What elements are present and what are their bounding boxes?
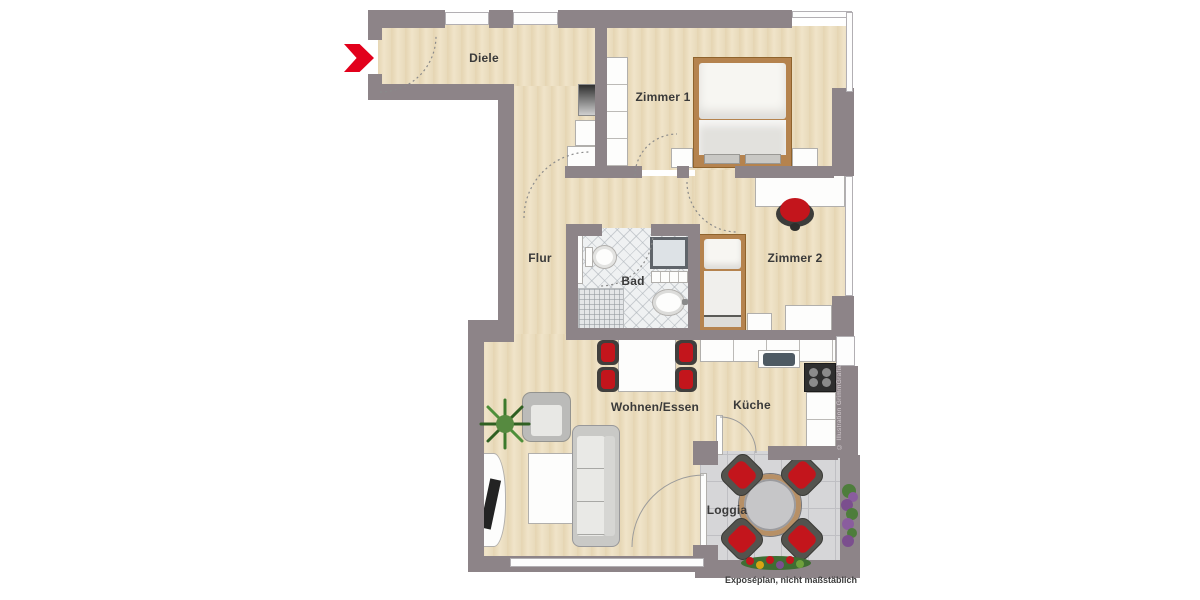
- bed-footpad: [745, 154, 781, 164]
- sofa-seats: [577, 436, 605, 536]
- shower-floor: [578, 288, 624, 331]
- window: [845, 176, 853, 296]
- burner: [822, 378, 831, 387]
- room-label-zimmer1: Zimmer 1: [636, 90, 691, 104]
- nightstand-left: [671, 148, 693, 168]
- wall: [832, 88, 854, 176]
- wall: [566, 328, 700, 340]
- sink-unit: [758, 350, 800, 368]
- wall: [700, 330, 836, 340]
- dining-chair: [675, 367, 697, 392]
- window: [510, 558, 704, 567]
- burner: [822, 368, 831, 377]
- window: [792, 11, 852, 18]
- chair-cushion: [679, 343, 693, 362]
- illustrator-credit: © Illustration GrimmGrafik: [836, 362, 843, 450]
- nightstand-right: [792, 148, 818, 168]
- stove: [804, 363, 836, 392]
- wall: [768, 446, 838, 460]
- entrance-arrow-icon: [344, 44, 374, 72]
- room-label-bad: Bad: [621, 274, 644, 288]
- wall: [688, 224, 700, 334]
- toilet: [592, 245, 617, 269]
- dresser: [785, 305, 832, 332]
- armchair: [522, 392, 571, 442]
- wall: [651, 224, 700, 236]
- chair-cushion: [601, 370, 615, 389]
- wall: [489, 10, 513, 28]
- wall: [368, 74, 382, 86]
- sink-basin: [763, 353, 795, 366]
- bed-pillow: [704, 239, 741, 269]
- washbasin: [652, 289, 685, 316]
- wall: [368, 84, 514, 100]
- dining-chair: [675, 340, 697, 365]
- chair-cushion: [726, 459, 759, 492]
- chair-cushion: [786, 459, 819, 492]
- dining-chair: [597, 340, 619, 365]
- burner: [809, 368, 818, 377]
- sofa: [572, 425, 620, 547]
- sofa-backrest: [604, 436, 615, 536]
- burner: [809, 378, 818, 387]
- wall: [566, 228, 578, 332]
- wall: [498, 94, 514, 324]
- wall: [677, 166, 689, 178]
- bed-duvet: [699, 120, 786, 155]
- room-label-flur: Flur: [528, 251, 551, 265]
- wall: [693, 441, 718, 465]
- vanity-shelf: [651, 271, 688, 283]
- wall: [735, 166, 834, 178]
- room-label-wohnen: Wohnen/Essen: [611, 400, 699, 414]
- wall: [468, 336, 484, 566]
- chair-cushion: [679, 370, 693, 389]
- single-bed: [699, 234, 746, 332]
- room-label-zimmer2: Zimmer 2: [768, 251, 823, 265]
- floor-corridor: [595, 176, 700, 228]
- floorplan-canvas: Diele Zimmer 1 Zimmer 2 Flur Bad Küche W…: [0, 0, 1200, 600]
- chair-cushion: [726, 523, 759, 556]
- room-label-diele: Diele: [469, 51, 499, 65]
- room-label-kueche: Küche: [733, 398, 771, 412]
- room-label-loggia: Loggia: [707, 503, 748, 517]
- chair-cushion: [786, 523, 819, 556]
- bed-duvet: [704, 271, 741, 315]
- bed-footpad: [704, 154, 740, 164]
- dining-table: [618, 334, 676, 392]
- wall: [595, 26, 607, 170]
- armchair-seat: [531, 405, 562, 436]
- double-bed: [693, 57, 792, 168]
- chair-cushion: [601, 343, 615, 362]
- wall: [558, 10, 792, 28]
- kitchen-side-counter: [806, 392, 836, 454]
- wall: [565, 166, 642, 178]
- plan-caption: Exposéplan, nicht maßstäblich: [725, 575, 857, 585]
- window: [513, 12, 558, 25]
- wall: [368, 10, 382, 40]
- dining-chair: [597, 367, 619, 392]
- shower: [650, 237, 688, 269]
- window: [846, 12, 853, 92]
- bed-pillow: [699, 63, 786, 119]
- bed-foot: [704, 315, 741, 327]
- window: [445, 12, 489, 25]
